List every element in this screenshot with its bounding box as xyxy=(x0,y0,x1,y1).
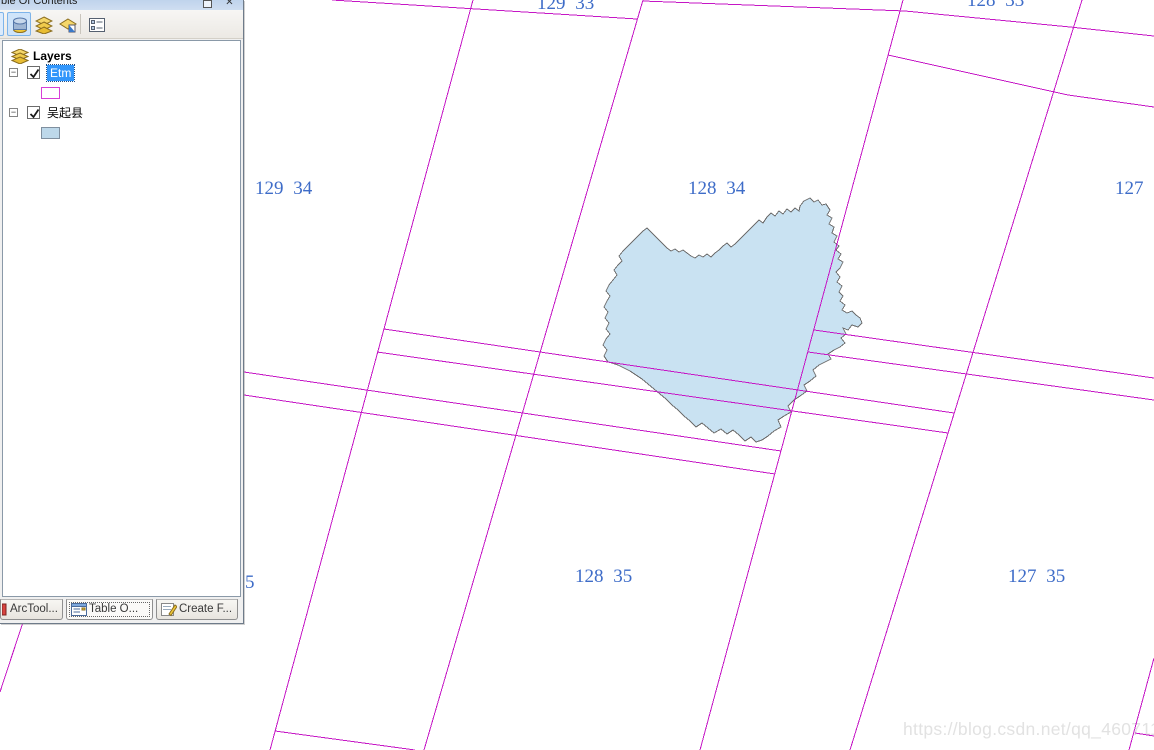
layer-row-etm[interactable]: − Etm xyxy=(3,65,240,81)
toc-dock-tabs: ArcTool... Table O... xyxy=(0,599,243,622)
toc-layer-tree: Layers − Etm − xyxy=(2,40,241,597)
tab-table-of-contents[interactable]: Table O... xyxy=(66,599,153,620)
list-by-visibility-icon[interactable] xyxy=(55,12,79,36)
list-by-source-icon[interactable] xyxy=(31,12,55,36)
layers-icon xyxy=(11,49,29,64)
collapse-icon[interactable]: − xyxy=(9,108,18,117)
wuqixian-symbol-row[interactable] xyxy=(3,125,240,141)
toolbar-separator xyxy=(80,14,81,34)
tab-label: ArcTool... xyxy=(10,603,58,615)
layer-visibility-glyph xyxy=(59,16,77,34)
scene-label-129-33: 129 33 xyxy=(537,0,594,15)
arcmap-window: https://blog.csdn.net/qq_46071133 xyxy=(0,0,1154,750)
scene-label-128-33: 128 33 xyxy=(967,0,1024,12)
scene-label-127-35: 127 35 xyxy=(1008,566,1065,588)
arctoolbox-icon xyxy=(2,602,8,620)
tree-root-layers[interactable]: Layers xyxy=(3,48,240,64)
tab-create-features[interactable]: Create F... xyxy=(156,599,238,620)
options-icon[interactable] xyxy=(84,12,108,36)
wuqixian-visibility-checkbox[interactable] xyxy=(27,106,40,119)
etm-symbol-row[interactable] xyxy=(3,85,240,101)
scene-label-127-34-clipped: 127 xyxy=(1115,178,1144,200)
etm-layer-label[interactable]: Etm xyxy=(47,65,74,81)
etm-visibility-checkbox[interactable] xyxy=(27,66,40,79)
layer-row-wuqixian[interactable]: − 吴起县 xyxy=(3,105,240,121)
etm-outline-symbol[interactable] xyxy=(41,87,60,99)
clipped-toolbar-button[interactable] xyxy=(0,12,4,36)
toc-titlebar[interactable]: ble Of Contents ✕ xyxy=(0,0,243,10)
collapse-icon[interactable]: − xyxy=(9,68,18,77)
create-features-icon xyxy=(161,602,177,620)
county-polygon-wuqi xyxy=(603,198,862,442)
table-of-contents-panel: ble Of Contents ✕ xyxy=(0,0,244,624)
layers-root-label: Layers xyxy=(33,48,72,64)
scene-label-128-35: 128 35 xyxy=(575,566,632,588)
toc-title: ble Of Contents xyxy=(1,0,77,7)
scene-label-129-34: 129 34 xyxy=(255,178,312,200)
tab-label: Create F... xyxy=(179,603,232,615)
wuqixian-fill-symbol[interactable] xyxy=(41,127,60,139)
scene-label-129-35-clipped: 5 xyxy=(245,572,255,594)
tab-arctoolbox[interactable]: ArcTool... xyxy=(0,599,63,620)
check-glyph xyxy=(28,67,41,80)
wuqixian-layer-label[interactable]: 吴起县 xyxy=(47,105,83,121)
layer-stack-glyph xyxy=(35,16,53,34)
check-glyph xyxy=(28,107,41,120)
cylinder-glyph xyxy=(11,16,29,34)
tab-label: Table O... xyxy=(89,603,138,615)
scene-label-128-34: 128 34 xyxy=(688,178,745,200)
toc-toolbar xyxy=(0,10,243,39)
table-of-contents-icon xyxy=(71,602,87,620)
restore-icon[interactable] xyxy=(200,0,215,9)
close-icon[interactable]: ✕ xyxy=(222,0,237,9)
list-by-drawing-order-icon[interactable] xyxy=(7,12,31,36)
options-list-glyph xyxy=(88,16,106,34)
